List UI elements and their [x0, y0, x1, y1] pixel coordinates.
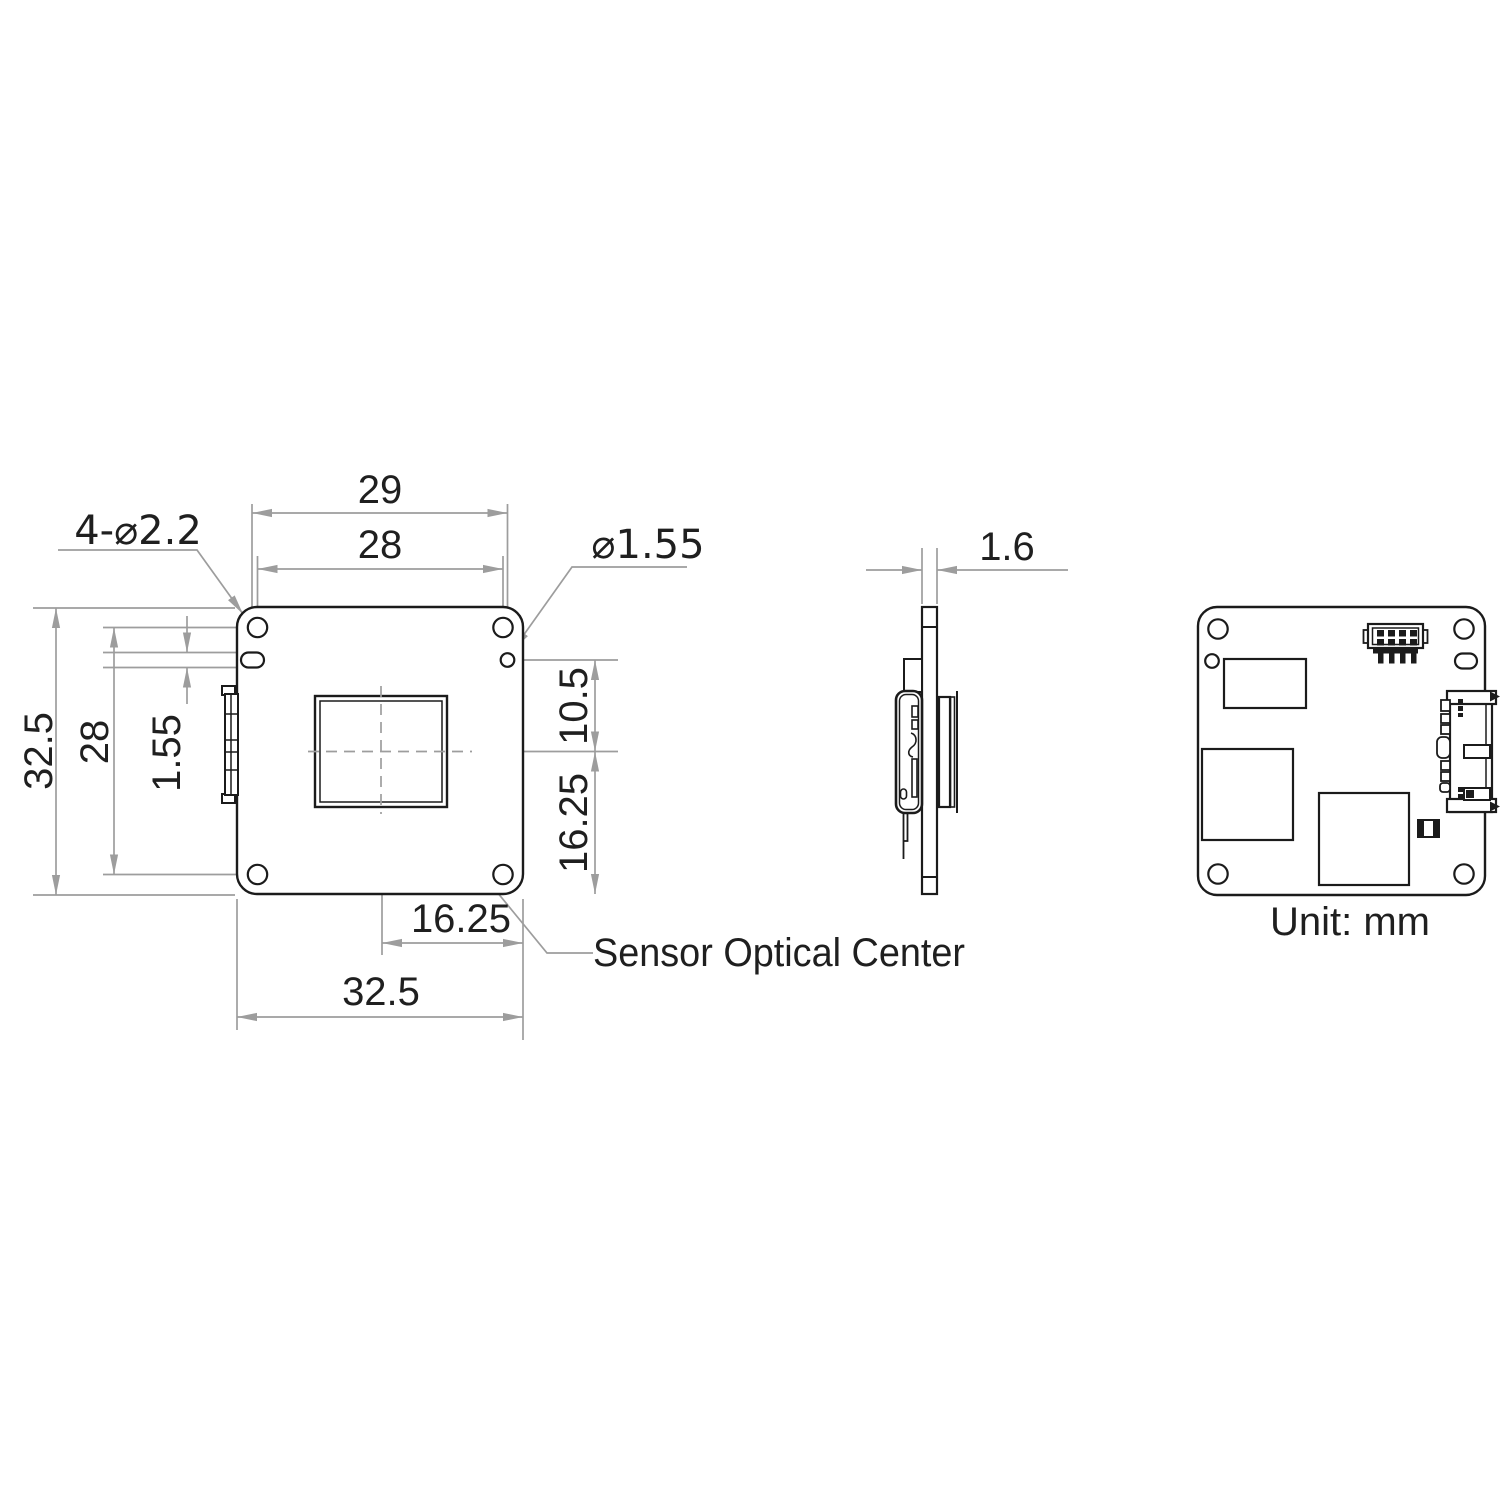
camera-board-dimension-drawing: 29 28 32.5 28 1.55 10.5 16.25 16.25 32.5…	[0, 0, 1500, 1500]
dim-top-inner-label: 28	[358, 523, 403, 567]
back-hole-top-right	[1454, 619, 1473, 638]
front-hole-top-left	[248, 618, 267, 637]
technical-drawing-page: 29 28 32.5 28 1.55 10.5 16.25 16.25 32.5…	[0, 0, 1500, 1500]
unit-note: Unit: mm	[1270, 900, 1430, 944]
back-hole-bottom-right	[1454, 864, 1473, 883]
small-hole-callout: ⌀1.55	[591, 522, 704, 568]
corner-holes-leader	[58, 550, 243, 614]
side-usb-connector	[896, 691, 922, 859]
side-extension-lines	[922, 548, 937, 604]
side-sensor-package	[939, 691, 957, 813]
dim-top-outer-label: 29	[358, 468, 403, 512]
dim-thickness-label: 1.6	[979, 525, 1035, 569]
back-hole-top-left	[1208, 619, 1227, 638]
dim-left-outer-label: 32.5	[17, 712, 61, 790]
front-small-hole	[501, 653, 515, 667]
dim-slot-label: 1.55	[145, 714, 189, 792]
back-view: Unit: mm	[1198, 607, 1500, 944]
dim-bottom-outer-label: 32.5	[342, 970, 420, 1014]
back-slot-hole	[1455, 654, 1477, 669]
front-view: 29 28 32.5 28 1.55 10.5 16.25 16.25 32.5…	[17, 468, 965, 1040]
front-hole-top-right	[493, 618, 512, 637]
small-hole-leader	[513, 567, 687, 650]
side-usb-tab	[904, 659, 922, 692]
front-hole-bottom-right	[493, 865, 512, 884]
front-slot-hole	[241, 653, 264, 668]
dim-left-inner-label: 28	[73, 720, 117, 765]
front-hole-bottom-left	[248, 865, 267, 884]
side-usb-leg	[904, 813, 908, 859]
front-board-outline	[237, 607, 523, 894]
back-small-hole	[1205, 654, 1219, 668]
corner-holes-callout: 4-⌀2.2	[74, 508, 202, 554]
side-pcb	[922, 607, 937, 894]
front-left-usb-connector	[222, 686, 238, 803]
dim-right-lower-label: 16.25	[552, 773, 596, 873]
back-hole-bottom-left	[1208, 864, 1227, 883]
sensor-optical-center-label: Sensor Optical Center	[593, 931, 965, 975]
dim-bottom-inner-label: 16.25	[411, 897, 511, 941]
dim-right-upper-label: 10.5	[552, 667, 596, 745]
side-view: 1.6	[866, 525, 1068, 894]
back-smd-component	[1418, 820, 1439, 837]
